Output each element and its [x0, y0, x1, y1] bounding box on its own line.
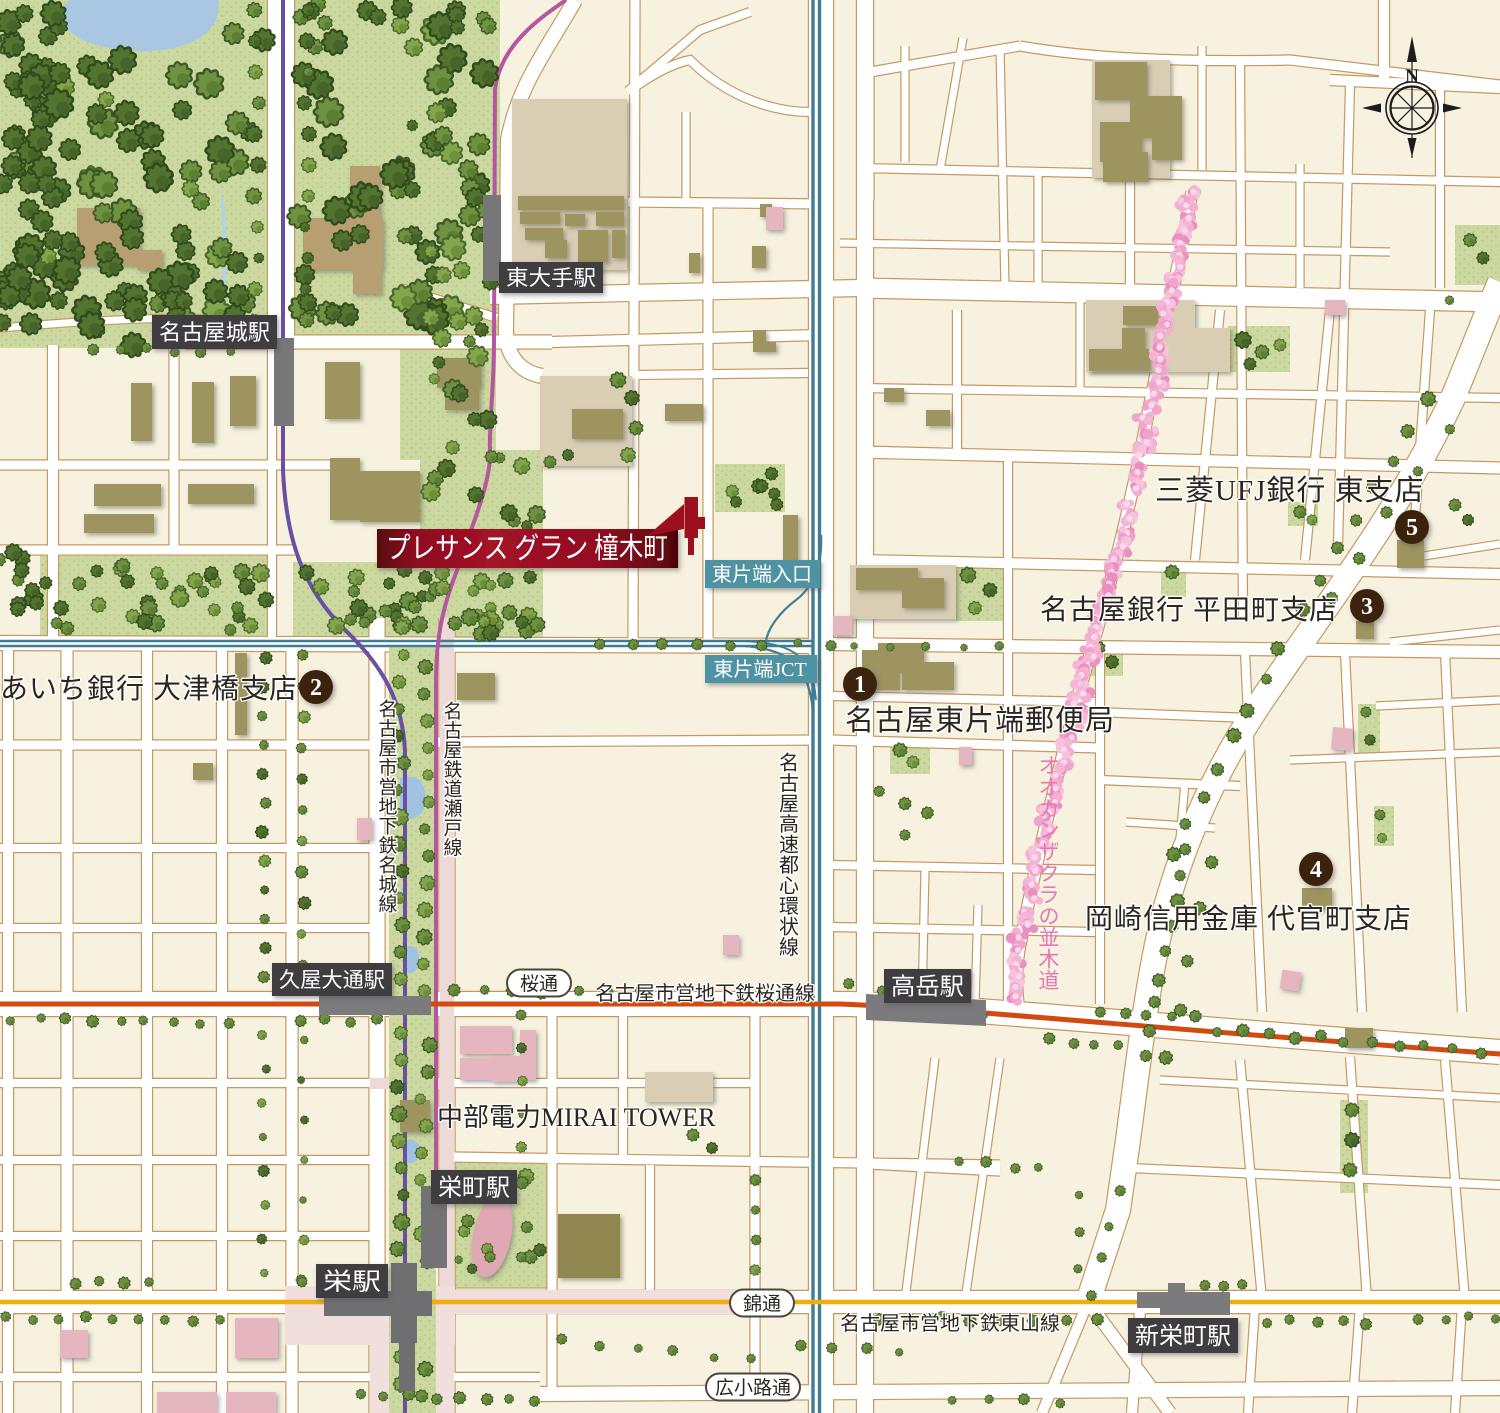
- svg-text:線: 線: [779, 936, 799, 959]
- svg-text:名古屋東片端郵便局: 名古屋東片端郵便局: [845, 704, 1115, 737]
- svg-text:名: 名: [378, 699, 397, 721]
- svg-text:中部電力MIRAI TOWER: 中部電力MIRAI TOWER: [437, 1103, 716, 1132]
- svg-text:の: の: [1039, 905, 1060, 929]
- svg-text:ク: ク: [1039, 862, 1060, 886]
- svg-text:オ: オ: [1039, 776, 1060, 800]
- svg-text:名古屋市営地下鉄桜通線: 名古屋市営地下鉄桜通線: [595, 982, 815, 1005]
- svg-text:古: 古: [779, 772, 799, 795]
- svg-text:城: 城: [378, 874, 397, 896]
- svg-text:名: 名: [779, 751, 799, 774]
- svg-text:2: 2: [310, 675, 322, 701]
- svg-text:栄町駅: 栄町駅: [438, 1175, 510, 1202]
- svg-text:屋: 屋: [779, 793, 799, 815]
- svg-text:心: 心: [779, 875, 799, 897]
- svg-text:新栄町駅: 新栄町駅: [1135, 1323, 1231, 1350]
- svg-text:1: 1: [854, 672, 866, 698]
- svg-text:並: 並: [1039, 926, 1060, 950]
- svg-text:名: 名: [378, 855, 397, 877]
- svg-text:古: 古: [443, 720, 462, 742]
- svg-text:環: 環: [779, 896, 799, 918]
- svg-text:名古屋銀行 平田町支店: 名古屋銀行 平田町支店: [1040, 594, 1338, 626]
- svg-text:錦通: 錦通: [743, 1293, 781, 1315]
- svg-text:3: 3: [1361, 594, 1373, 620]
- svg-text:名: 名: [443, 701, 462, 723]
- svg-text:線: 線: [443, 837, 462, 859]
- svg-text:ラ: ラ: [1039, 883, 1060, 907]
- svg-text:瀬: 瀬: [443, 798, 462, 820]
- svg-text:木: 木: [1039, 948, 1060, 972]
- svg-text:線: 線: [378, 894, 397, 916]
- svg-text:岡崎信用金庫 代官町支店: 岡崎信用金庫 代官町支店: [1085, 903, 1412, 935]
- svg-text:鉄: 鉄: [443, 759, 462, 781]
- svg-text:名古屋城駅: 名古屋城駅: [159, 320, 270, 345]
- svg-text:東大手駅: 東大手駅: [506, 266, 596, 290]
- svg-text:東片端入口: 東片端入口: [712, 563, 812, 586]
- svg-text:オ: オ: [1039, 754, 1060, 778]
- svg-text:栄駅: 栄駅: [323, 1269, 381, 1296]
- svg-text:プレサンス グラン 橦木町: プレサンス グラン 橦木町: [386, 532, 668, 565]
- svg-text:道: 道: [443, 779, 462, 801]
- svg-text:古: 古: [378, 718, 397, 740]
- svg-text:あいち銀行 大津橋支店: あいち銀行 大津橋支店: [0, 673, 298, 705]
- svg-text:ン: ン: [1039, 819, 1060, 843]
- svg-text:地: 地: [378, 796, 397, 818]
- svg-text:広小路通: 広小路通: [715, 1377, 791, 1399]
- svg-text:名古屋市営地下鉄東山線: 名古屋市営地下鉄東山線: [840, 1312, 1060, 1335]
- svg-text:5: 5: [1406, 515, 1418, 541]
- svg-text:下: 下: [378, 817, 397, 838]
- svg-text:営: 営: [378, 777, 397, 799]
- svg-text:N: N: [1405, 66, 1419, 87]
- svg-text:桜通: 桜通: [520, 973, 558, 995]
- svg-text:高: 高: [779, 813, 799, 836]
- svg-text:東片端JCT: 東片端JCT: [713, 658, 806, 681]
- svg-text:速: 速: [779, 833, 799, 856]
- svg-text:屋: 屋: [443, 741, 462, 762]
- svg-text:戸: 戸: [443, 819, 462, 840]
- svg-text:鉄: 鉄: [378, 835, 397, 857]
- svg-text:道: 道: [1039, 969, 1060, 993]
- svg-text:高岳駅: 高岳駅: [891, 974, 964, 1001]
- svg-text:市: 市: [378, 757, 397, 779]
- svg-text:三菱UFJ銀行 東支店: 三菱UFJ銀行 東支店: [1155, 474, 1425, 507]
- svg-text:4: 4: [1310, 857, 1322, 883]
- svg-text:ザ: ザ: [1039, 840, 1060, 864]
- svg-text:カ: カ: [1039, 797, 1060, 821]
- svg-text:都: 都: [779, 854, 799, 877]
- svg-text:久屋大通駅: 久屋大通駅: [279, 968, 385, 992]
- svg-text:状: 状: [779, 915, 799, 938]
- svg-text:屋: 屋: [378, 739, 397, 760]
